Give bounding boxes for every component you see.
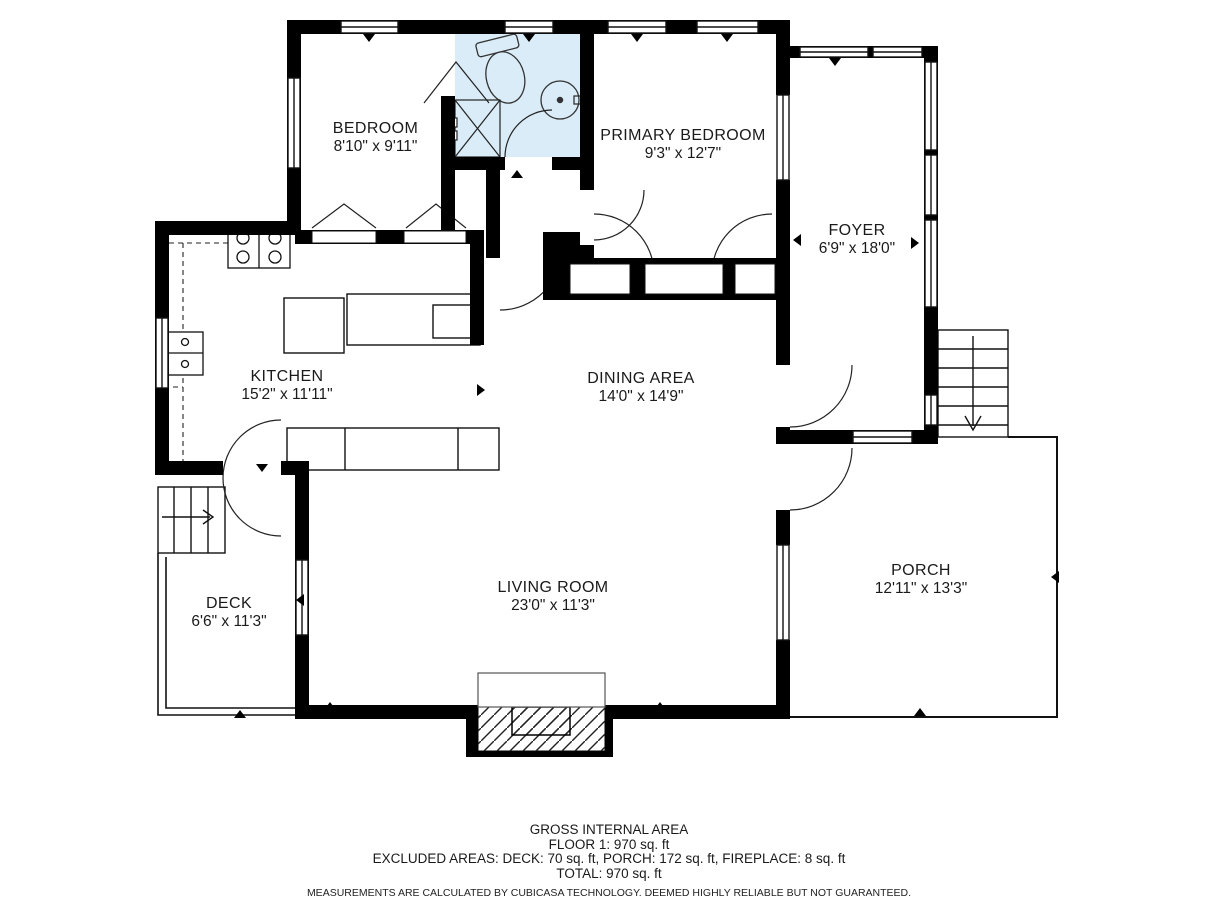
- window: [505, 21, 553, 33]
- fireplace-icon: [466, 673, 613, 757]
- window: [853, 431, 912, 443]
- excluded-areas-line: EXCLUDED AREAS: DECK: 70 sq. ft, PORCH: …: [0, 852, 1218, 867]
- door-dining-porch: [790, 448, 852, 510]
- window: [608, 21, 666, 33]
- closet-door-mark-2: [406, 204, 466, 228]
- area-summary: GROSS INTERNAL AREA FLOOR 1: 970 sq. ft …: [0, 823, 1218, 901]
- window: [288, 78, 300, 168]
- stairs-deck: [158, 487, 225, 553]
- window: [873, 47, 922, 57]
- window: [925, 155, 937, 215]
- door-kitchen-deck: [223, 420, 281, 536]
- total-area-line: TOTAL: 970 sq. ft: [0, 867, 1218, 882]
- window: [341, 21, 398, 33]
- window: [777, 95, 789, 180]
- disclaimer-text: MEASUREMENTS ARE CALCULATED BY CUBICASA …: [0, 886, 1218, 901]
- window: [156, 318, 168, 388]
- floor-plan-drawing: [0, 0, 1218, 914]
- floor-area-line: FLOOR 1: 970 sq. ft: [0, 838, 1218, 853]
- stairs-down-foyer: [938, 330, 1008, 437]
- window: [777, 545, 789, 640]
- door-dining-foyer: [790, 365, 852, 427]
- window: [925, 62, 937, 150]
- window: [800, 47, 868, 57]
- closet-door-mark-1: [312, 204, 376, 228]
- gross-internal-area-title: GROSS INTERNAL AREA: [0, 823, 1218, 838]
- window: [925, 395, 937, 425]
- porch-outline: [790, 437, 1057, 717]
- window: [925, 220, 937, 307]
- kitchen-counters: [284, 294, 499, 470]
- deck-outline: [158, 553, 295, 715]
- window: [697, 21, 758, 33]
- floor-plan: BEDROOM 8'10" x 9'11" BATH 8'2" x 6'5" P…: [0, 0, 1218, 914]
